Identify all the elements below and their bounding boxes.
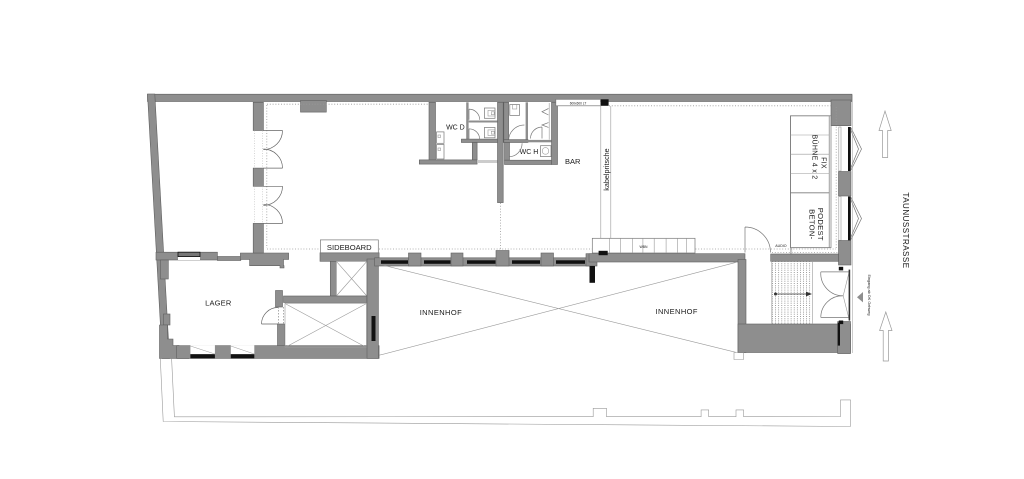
svg-text:INNENHOF: INNENHOF: [656, 307, 698, 316]
svg-text:WBN: WBN: [640, 245, 648, 249]
svg-text:AUDIO: AUDIO: [775, 244, 787, 248]
svg-text:600x600 LT: 600x600 LT: [570, 101, 587, 105]
svg-text:LAGER: LAGER: [205, 298, 232, 307]
svg-text:WC H: WC H: [520, 149, 539, 156]
svg-text:BETON-: BETON-: [807, 209, 816, 240]
svg-text:TAUNUSSTRASSE: TAUNUSSTRASSE: [901, 192, 910, 268]
svg-text:BÜHNE 4 x 2: BÜHNE 4 x 2: [811, 135, 819, 180]
svg-text:FIX: FIX: [820, 157, 827, 169]
svg-text:BAR: BAR: [565, 157, 581, 166]
svg-text:PODEST: PODEST: [816, 208, 825, 241]
svg-text:SIDEBOARD: SIDEBOARD: [327, 243, 372, 252]
svg-text:INNENHOF: INNENHOF: [420, 308, 462, 317]
svg-text:kabelpritsche: kabelpritsche: [602, 148, 611, 190]
svg-text:Eingang ab OK Gehweg: Eingang ab OK Gehweg: [867, 275, 871, 316]
svg-text:WC D: WC D: [446, 124, 465, 131]
